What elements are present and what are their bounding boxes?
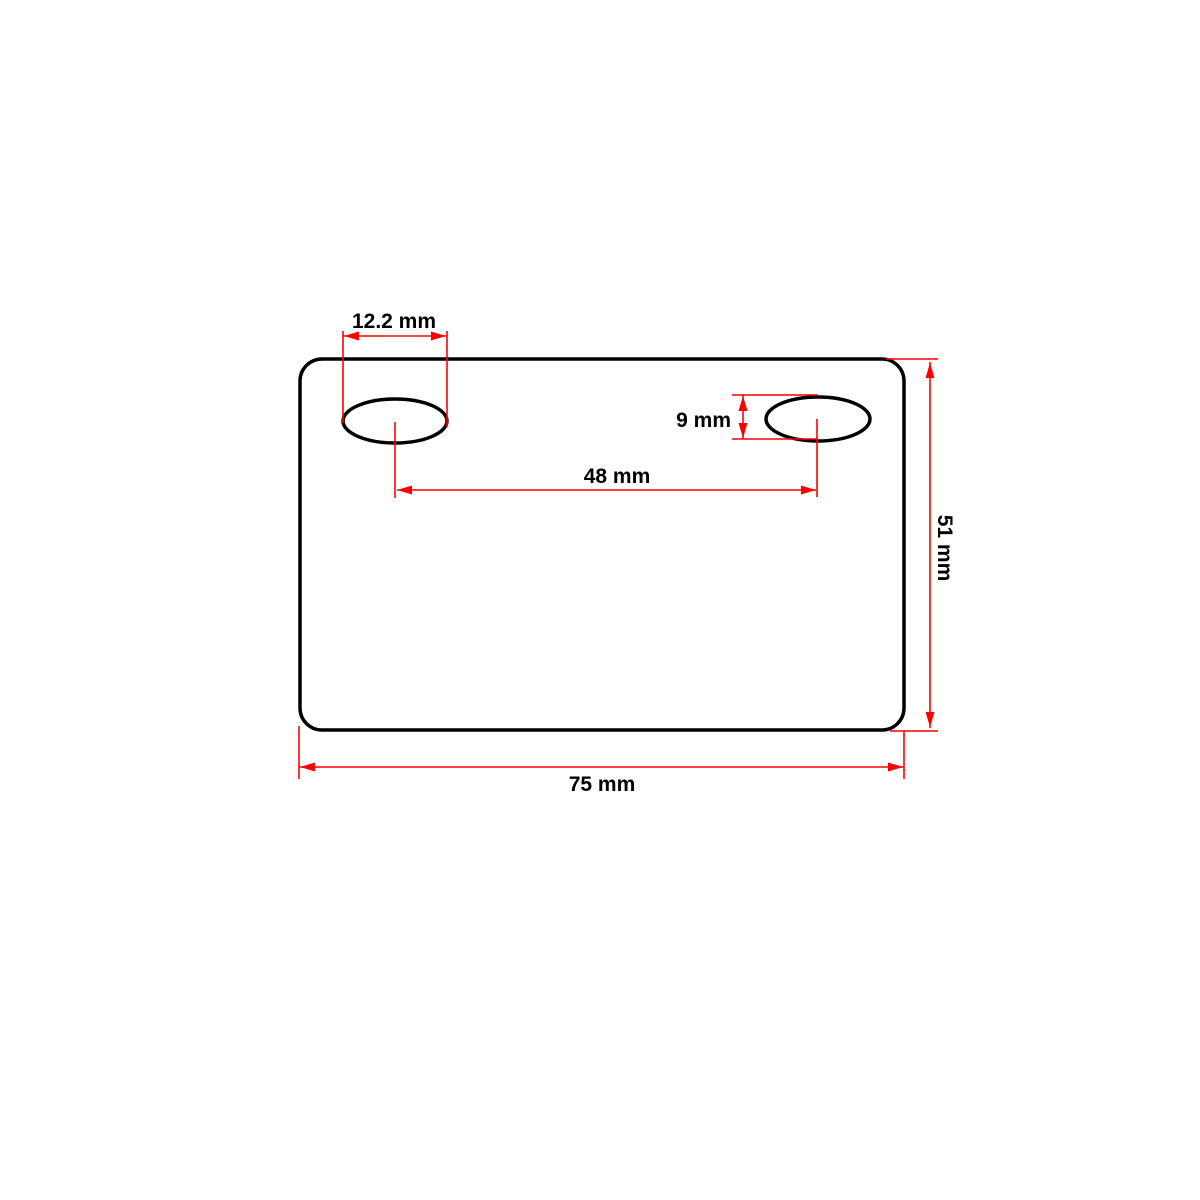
slot-width-label: 12.2 mm bbox=[352, 310, 436, 333]
part-outline bbox=[300, 359, 904, 730]
arrow-down-icon bbox=[926, 712, 935, 727]
right-slot-hole bbox=[766, 397, 870, 441]
arrow-up-icon bbox=[926, 363, 935, 378]
dimension-plate-width: 75 mm bbox=[299, 726, 904, 796]
slot-spacing-label: 48 mm bbox=[584, 465, 651, 488]
plate-dimension-drawing: 12.2 mm 48 mm 9 mm 51 mm bbox=[0, 0, 1200, 1200]
slot-height-label: 9 mm bbox=[676, 409, 731, 432]
plate-width-label: 75 mm bbox=[569, 773, 636, 796]
arrow-left-icon bbox=[300, 763, 315, 772]
plate-height-label: 51 mm bbox=[933, 515, 956, 582]
technical-drawing-canvas: 12.2 mm 48 mm 9 mm 51 mm bbox=[0, 0, 1200, 1200]
arrow-right-icon bbox=[888, 763, 903, 772]
